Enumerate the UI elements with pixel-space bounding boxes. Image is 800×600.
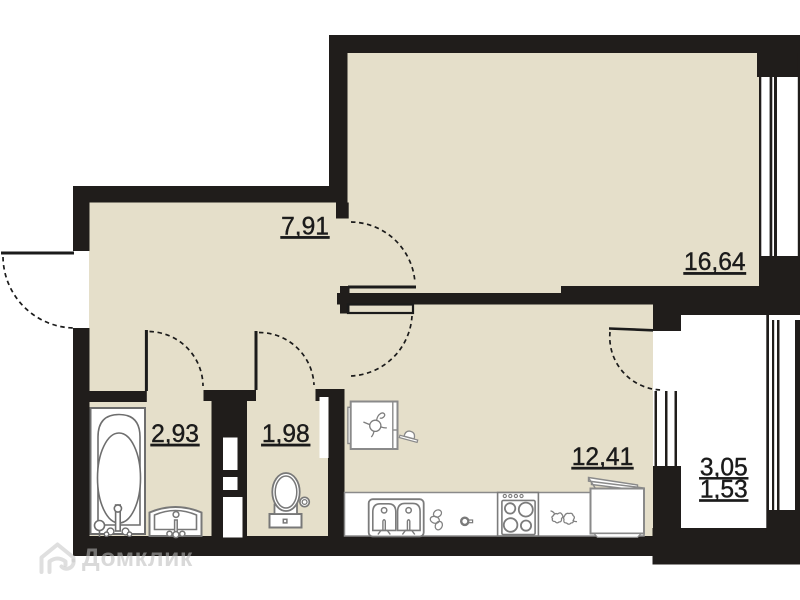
svg-text:Домклик: Домклик (82, 545, 193, 572)
